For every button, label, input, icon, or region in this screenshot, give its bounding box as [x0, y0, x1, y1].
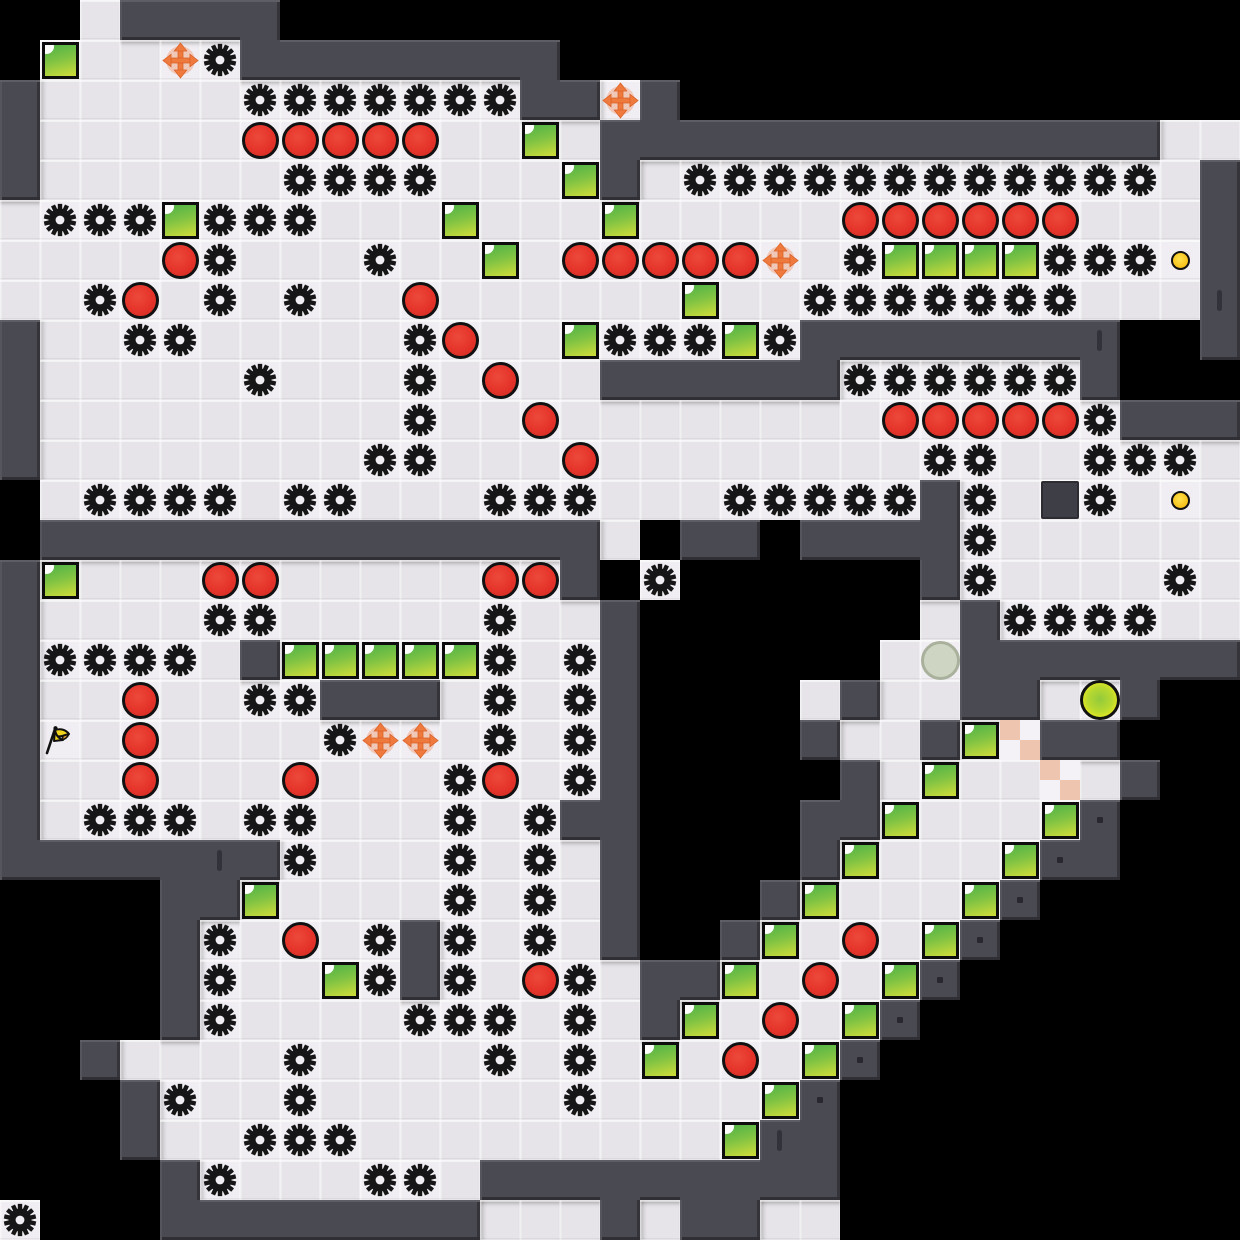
floor-tile [400, 800, 440, 840]
floor-tile [760, 320, 800, 360]
floor-tile [640, 1120, 680, 1160]
floor-tile [560, 120, 600, 160]
gear-saw-icon [760, 320, 800, 360]
floor-tile [160, 1040, 200, 1080]
red-ball [960, 400, 1000, 440]
floor-tile [200, 1120, 240, 1160]
red-ball [320, 120, 360, 160]
floor-tile [160, 440, 200, 480]
gear-saw-icon [960, 360, 1000, 400]
floor-tile [600, 1120, 640, 1160]
floor-tile [760, 200, 800, 240]
green-block-icon [560, 320, 600, 360]
floor-tile [760, 1000, 800, 1040]
green-block-icon [720, 1120, 760, 1160]
wall-tile [0, 680, 40, 720]
gear-saw-icon [880, 280, 920, 320]
floor-tile [440, 560, 480, 600]
floor-tile [240, 720, 280, 760]
gear-saw-icon [280, 1080, 320, 1120]
floor-tile [80, 560, 120, 600]
floor-tile [480, 280, 520, 320]
floor-tile [440, 680, 480, 720]
floor-tile [120, 760, 160, 800]
wall-tile [120, 840, 160, 880]
green-block-icon [840, 840, 880, 880]
floor-tile [0, 1200, 40, 1240]
gear-saw-icon [960, 440, 1000, 480]
gear-saw-icon [440, 760, 480, 800]
wall-tile [400, 1200, 440, 1240]
floor-tile [480, 920, 520, 960]
floor-tile [320, 320, 360, 360]
gear-saw-icon [560, 480, 600, 520]
wall-tile [1080, 720, 1120, 760]
red-ball [880, 400, 920, 440]
floor-tile [480, 480, 520, 520]
floor-tile [320, 480, 360, 520]
floor-tile [80, 400, 120, 440]
floor-tile [200, 400, 240, 440]
floor-tile [40, 240, 80, 280]
floor-tile [320, 160, 360, 200]
gear-saw-icon [320, 160, 360, 200]
gear-saw-icon [720, 160, 760, 200]
wall-tile [280, 40, 320, 80]
floor-tile [440, 120, 480, 160]
wall-tile [160, 960, 200, 1000]
floor-tile [0, 200, 40, 240]
floor-tile [880, 280, 920, 320]
floor-tile [320, 880, 360, 920]
gear-saw-icon [880, 160, 920, 200]
green-block-icon [240, 880, 280, 920]
floor-tile [480, 960, 520, 1000]
gear-saw-icon [640, 560, 680, 600]
wall-tile [1120, 400, 1160, 440]
floor-tile [240, 680, 280, 720]
floor-tile [80, 440, 120, 480]
gear-saw-icon [440, 1000, 480, 1040]
wall-tile [0, 360, 40, 400]
floor-tile [1200, 120, 1240, 160]
floor-tile [120, 40, 160, 80]
floor-tile [160, 640, 200, 680]
floor-tile [280, 200, 320, 240]
floor-tile [480, 720, 520, 760]
wall-tile [480, 40, 520, 80]
floor-tile [80, 760, 120, 800]
floor-tile [880, 440, 920, 480]
wall-tile [320, 520, 360, 560]
floor-tile [1120, 480, 1160, 520]
wall-dot-mark [1000, 880, 1040, 920]
wall-tile [1000, 320, 1040, 360]
floor-tile [240, 320, 280, 360]
gear-saw-icon [560, 1080, 600, 1120]
checker-tile [1000, 720, 1040, 760]
gear-saw-icon [400, 160, 440, 200]
floor-tile [520, 240, 560, 280]
gear-saw-icon [320, 1120, 360, 1160]
floor-tile [160, 600, 200, 640]
floor-tile [240, 280, 280, 320]
wall-tile [800, 720, 840, 760]
floor-tile [440, 600, 480, 640]
floor-tile [80, 80, 120, 120]
floor-tile [1000, 400, 1040, 440]
floor-tile [600, 280, 640, 320]
wall-tile [920, 120, 960, 160]
floor-tile [40, 400, 80, 440]
wall-tile [960, 320, 1000, 360]
wall-tile [320, 1200, 360, 1240]
floor-tile [800, 960, 840, 1000]
gear-saw-icon [80, 200, 120, 240]
floor-tile [160, 800, 200, 840]
floor-tile [40, 80, 80, 120]
floor-tile [240, 920, 280, 960]
wall-tile [1160, 400, 1200, 440]
wall-tile [920, 560, 960, 600]
wall-tile [760, 120, 800, 160]
floor-tile [840, 240, 880, 280]
floor-tile [880, 680, 920, 720]
gear-saw-icon [480, 1040, 520, 1080]
floor-tile [760, 960, 800, 1000]
floor-tile [360, 120, 400, 160]
floor-tile [840, 400, 880, 440]
green-block-icon [960, 880, 1000, 920]
floor-tile [200, 600, 240, 640]
red-ball [160, 240, 200, 280]
wall-tile [800, 360, 840, 400]
gear-saw-icon [880, 360, 920, 400]
floor-tile [40, 600, 80, 640]
floor-tile [320, 440, 360, 480]
floor-tile [840, 840, 880, 880]
floor-tile [520, 160, 560, 200]
floor-tile [840, 1000, 880, 1040]
floor-tile [80, 600, 120, 640]
wall-tile [760, 880, 800, 920]
floor-tile [1040, 800, 1080, 840]
gear-saw-icon [520, 480, 560, 520]
floor-tile [680, 1040, 720, 1080]
wall-tile [960, 120, 1000, 160]
floor-tile [240, 960, 280, 1000]
green-block-icon [320, 640, 360, 680]
wall-tile [680, 1200, 720, 1240]
gear-saw-icon [280, 480, 320, 520]
floor-tile [840, 440, 880, 480]
floor-tile [960, 280, 1000, 320]
floor-tile [480, 160, 520, 200]
gear-saw-icon [560, 1040, 600, 1080]
wall-tile [840, 320, 880, 360]
green-block-icon [520, 120, 560, 160]
floor-tile [80, 800, 120, 840]
floor-tile [320, 920, 360, 960]
floor-tile [640, 200, 680, 240]
floor-tile [280, 280, 320, 320]
gear-saw-icon [200, 920, 240, 960]
wall-tile [680, 520, 720, 560]
floor-tile [200, 40, 240, 80]
gear-saw-icon [480, 1000, 520, 1040]
floor-tile [80, 280, 120, 320]
floor-tile [80, 480, 120, 520]
gear-saw-icon [1040, 360, 1080, 400]
green-block-icon [920, 760, 960, 800]
floor-tile [200, 1040, 240, 1080]
floor-tile [560, 1080, 600, 1120]
wall-tile [400, 680, 440, 720]
level-map[interactable] [0, 0, 1240, 1240]
floor-tile [520, 920, 560, 960]
red-ball [720, 1040, 760, 1080]
gear-saw-icon [800, 160, 840, 200]
floor-tile [960, 840, 1000, 880]
floor-tile [600, 200, 640, 240]
floor-tile [320, 280, 360, 320]
gear-saw-icon [960, 520, 1000, 560]
floor-tile [360, 240, 400, 280]
floor-tile [360, 1120, 400, 1160]
wall-tile [720, 1200, 760, 1240]
floor-tile [400, 120, 440, 160]
wall-tile [1160, 640, 1200, 680]
wall-tile [600, 800, 640, 840]
floor-tile [720, 200, 760, 240]
red-ball [640, 240, 680, 280]
floor-tile [640, 400, 680, 440]
floor-tile [360, 1080, 400, 1120]
floor-tile [920, 200, 960, 240]
wall-tile [160, 840, 200, 880]
gear-saw-icon [520, 840, 560, 880]
floor-tile [400, 280, 440, 320]
floor-tile [360, 200, 400, 240]
wall-tile [680, 360, 720, 400]
floor-tile [440, 640, 480, 680]
floor-tile [1120, 560, 1160, 600]
wall-tile [1200, 160, 1240, 200]
green-block-icon [960, 720, 1000, 760]
red-ball [280, 760, 320, 800]
floor-tile [840, 480, 880, 520]
floor-tile [360, 720, 400, 760]
wall-tile [600, 880, 640, 920]
floor-tile [280, 880, 320, 920]
floor-tile [880, 880, 920, 920]
floor-tile [1080, 560, 1120, 600]
floor-tile [480, 1200, 520, 1240]
floor-tile [40, 360, 80, 400]
green-block-icon [880, 800, 920, 840]
floor-tile [520, 640, 560, 680]
gear-saw-icon [240, 1120, 280, 1160]
gear-saw-icon [360, 1160, 400, 1200]
floor-tile [400, 600, 440, 640]
wall-tile [520, 520, 560, 560]
gear-saw-icon [240, 600, 280, 640]
floor-tile [240, 80, 280, 120]
floor-tile [200, 360, 240, 400]
floor-tile [200, 200, 240, 240]
wall-tick-mark [200, 840, 240, 880]
floor-tile [200, 560, 240, 600]
floor-tile [0, 280, 40, 320]
floor-tile [720, 320, 760, 360]
floor-tile [360, 280, 400, 320]
wall-dot-mark [840, 1040, 880, 1080]
floor-tile [320, 800, 360, 840]
wall-tile [800, 1120, 840, 1160]
floor-tile [1000, 840, 1040, 880]
floor-tile [560, 720, 600, 760]
floor-tile [920, 160, 960, 200]
floor-tile [440, 160, 480, 200]
floor-tile [480, 400, 520, 440]
floor-tile [1080, 200, 1120, 240]
red-ball [480, 560, 520, 600]
floor-tile [240, 1040, 280, 1080]
red-ball [280, 920, 320, 960]
gear-saw-icon [0, 1200, 40, 1240]
wall-tile [1040, 120, 1080, 160]
player-ball[interactable] [1080, 680, 1120, 720]
wall-tile [960, 680, 1000, 720]
floor-tile [1160, 120, 1200, 160]
wall-tile [920, 720, 960, 760]
gear-saw-icon [560, 640, 600, 680]
gear-saw-icon [240, 800, 280, 840]
wall-dot-mark [1080, 800, 1120, 840]
green-block-icon [800, 880, 840, 920]
floor-tile [440, 840, 480, 880]
floor-tile [240, 1120, 280, 1160]
gear-saw-icon [440, 840, 480, 880]
wall-tile [720, 520, 760, 560]
floor-tile [480, 200, 520, 240]
floor-tile [360, 560, 400, 600]
gear-saw-icon [680, 320, 720, 360]
floor-tile [520, 720, 560, 760]
floor-tile [360, 400, 400, 440]
floor-tile [240, 800, 280, 840]
red-ball [920, 400, 960, 440]
wall-tile [1080, 360, 1120, 400]
wall-tile [1200, 320, 1240, 360]
wall-tile [720, 1160, 760, 1200]
green-block-icon [680, 280, 720, 320]
floor-tile [520, 1040, 560, 1080]
floor-tile [360, 1040, 400, 1080]
floor-tile [1040, 440, 1080, 480]
gear-saw-icon [1120, 440, 1160, 480]
gear-saw-icon [520, 920, 560, 960]
wall-tick-mark [760, 1120, 800, 1160]
wall-tile [640, 80, 680, 120]
floor-tile [760, 240, 800, 280]
floor-tile [440, 360, 480, 400]
wall-tile [640, 360, 680, 400]
floor-tile [240, 440, 280, 480]
floor-tile [1080, 680, 1120, 720]
wall-tile [320, 40, 360, 80]
floor-tile [1160, 440, 1200, 480]
floor-tile [120, 560, 160, 600]
gear-saw-icon [280, 200, 320, 240]
floor-tile [120, 1040, 160, 1080]
gear-saw-icon [240, 80, 280, 120]
floor-tile [720, 280, 760, 320]
floor-tile [840, 920, 880, 960]
gear-saw-icon [1000, 280, 1040, 320]
wall-tile [0, 160, 40, 200]
floor-tile [600, 80, 640, 120]
floor-tile [560, 1200, 600, 1240]
floor-tile [200, 80, 240, 120]
floor-tile [520, 400, 560, 440]
gear-saw-icon [560, 720, 600, 760]
red-ball [560, 240, 600, 280]
wall-tile [1000, 640, 1040, 680]
gear-saw-icon [360, 440, 400, 480]
wall-tile [0, 120, 40, 160]
floor-tile [200, 1000, 240, 1040]
floor-tile [320, 1160, 360, 1200]
red-ball [280, 120, 320, 160]
gear-saw-icon [480, 480, 520, 520]
wall-tile [1120, 680, 1160, 720]
floor-tile [40, 440, 80, 480]
floor-tile [920, 880, 960, 920]
floor-tile [520, 1200, 560, 1240]
red-ball [400, 280, 440, 320]
wall-dot-mark [800, 1080, 840, 1120]
gear-saw-icon [920, 160, 960, 200]
floor-tile [880, 920, 920, 960]
wall-tile [800, 1160, 840, 1200]
floor-tile [320, 840, 360, 880]
floor-tile [1080, 280, 1120, 320]
floor-tile [880, 160, 920, 200]
wall-tick-mark [1080, 320, 1120, 360]
green-block-icon [840, 1000, 880, 1040]
wall-tick-mark [1200, 280, 1240, 320]
wall-tile [760, 360, 800, 400]
red-ball [120, 680, 160, 720]
wall-tile [240, 0, 280, 40]
floor-tile [960, 200, 1000, 240]
floor-tile [640, 480, 680, 520]
floor-tile [680, 280, 720, 320]
floor-tile [720, 1080, 760, 1120]
floor-tile [680, 200, 720, 240]
floor-tile [960, 400, 1000, 440]
floor-tile [800, 240, 840, 280]
red-ball [680, 240, 720, 280]
wall-tile [200, 1200, 240, 1240]
wall-tile [840, 760, 880, 800]
floor-tile [920, 360, 960, 400]
floor-tile [520, 280, 560, 320]
floor-tile [760, 1200, 800, 1240]
floor-tile [720, 960, 760, 1000]
wall-tile [640, 1000, 680, 1040]
